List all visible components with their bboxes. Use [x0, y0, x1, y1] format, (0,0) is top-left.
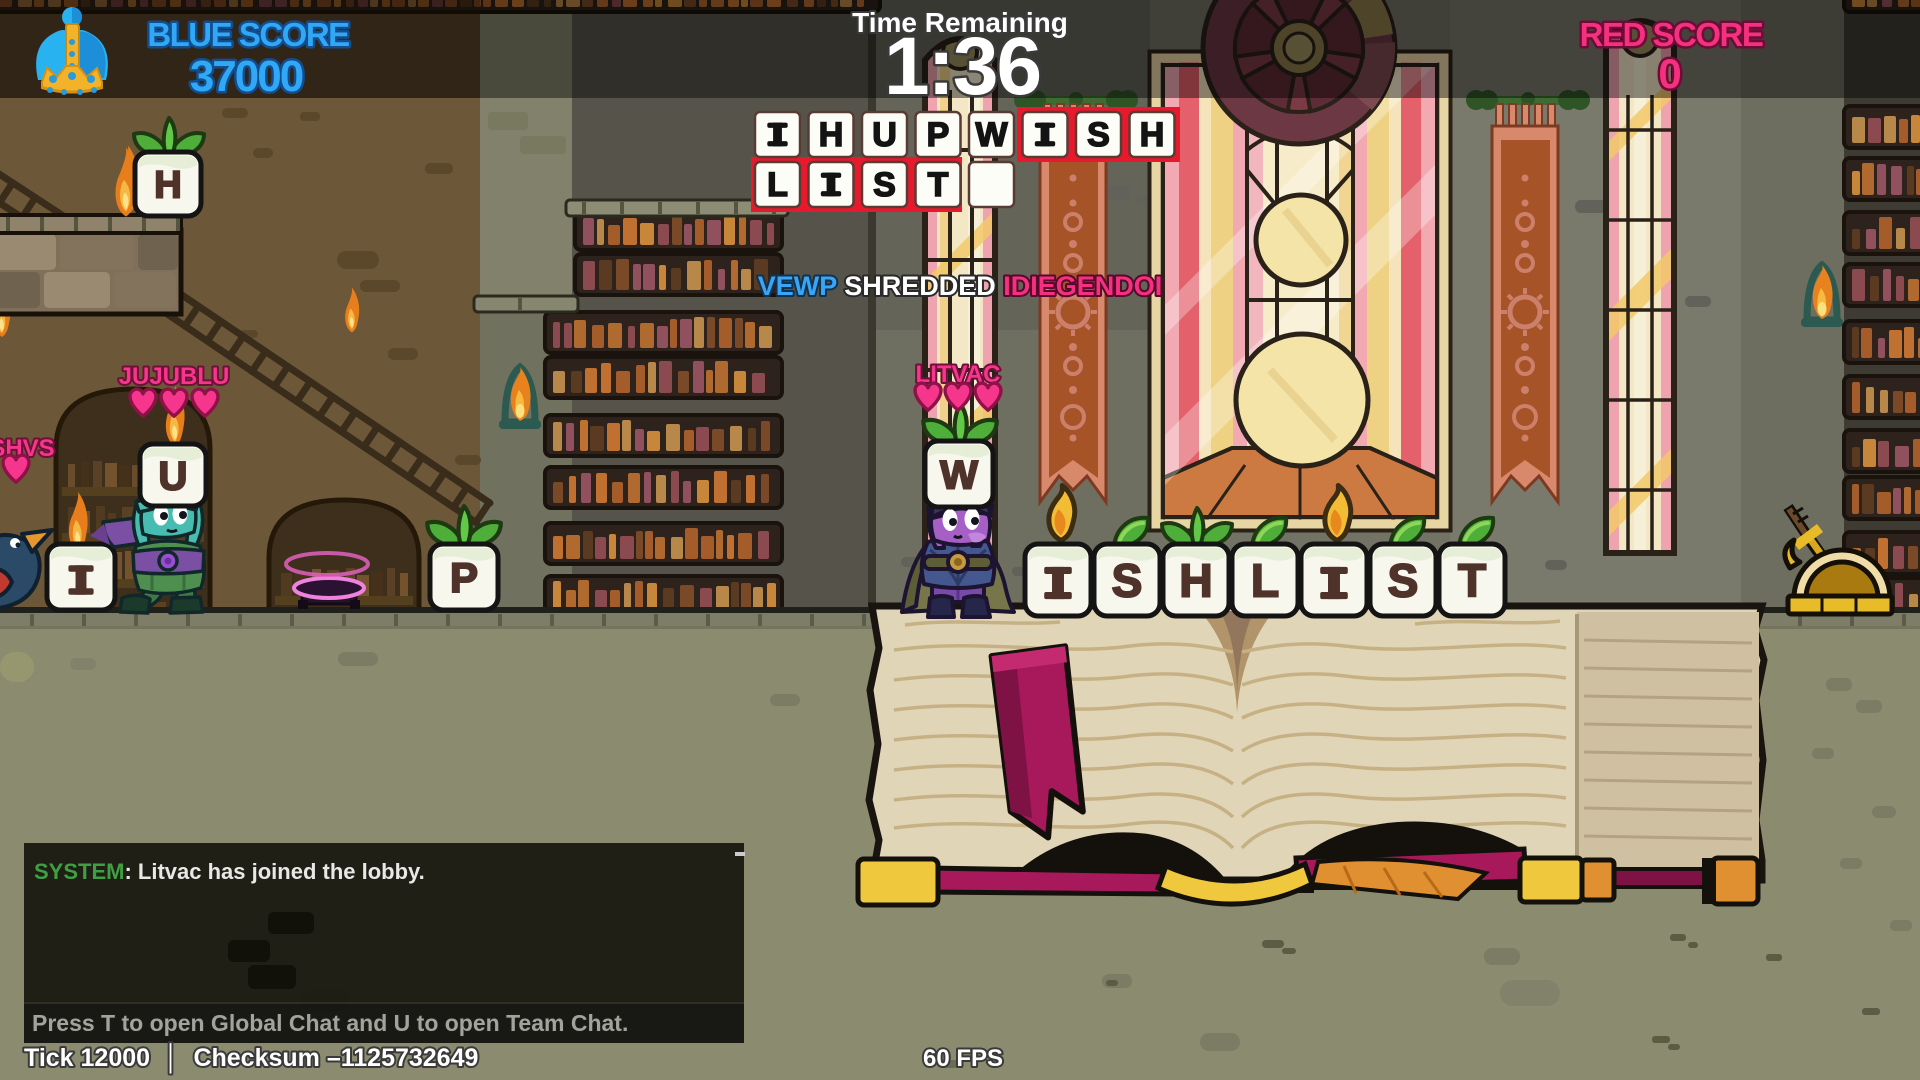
svg-text:W: W	[940, 453, 978, 497]
svg-text:U: U	[872, 116, 897, 154]
svg-text:SYSTEM: Litvac has joined the: SYSTEM: Litvac has joined the lobby.	[34, 859, 425, 884]
svg-text:H: H	[154, 165, 181, 207]
svg-text:T: T	[1458, 555, 1486, 607]
svg-text:L: L	[767, 166, 788, 204]
svg-text:60 FPS: 60 FPS	[923, 1045, 1003, 1072]
svg-text:1:36: 1:36	[884, 21, 1040, 112]
svg-text:BLUE SCORE: BLUE SCORE	[147, 16, 349, 53]
svg-text:0: 0	[1658, 50, 1681, 97]
svg-text:Tick 12000 │ Checksum –11257: Tick 12000 │ Checksum –1125732649	[24, 1043, 478, 1074]
svg-text:S: S	[1087, 116, 1110, 154]
svg-text:H: H	[819, 116, 844, 154]
svg-text:LITVAC: LITVAC	[916, 361, 1001, 388]
svg-text:P: P	[450, 554, 478, 601]
svg-text:P: P	[927, 116, 950, 154]
svg-text:S: S	[873, 166, 896, 204]
svg-text:U: U	[159, 454, 188, 498]
svg-text:S: S	[1112, 555, 1143, 607]
svg-text:37000: 37000	[190, 52, 303, 101]
svg-text:S: S	[1388, 555, 1419, 607]
svg-text:T: T	[928, 166, 949, 204]
svg-text:VEWP SHREDDED IDIEGENDOI: VEWP SHREDDED IDIEGENDOI	[758, 271, 1163, 301]
svg-text:H: H	[1179, 555, 1212, 607]
svg-text:Press T to open Global Chat an: Press T to open Global Chat and U to ope…	[32, 1010, 628, 1036]
svg-text:L: L	[1251, 555, 1279, 607]
svg-text:W: W	[975, 116, 1008, 154]
svg-text:RED SCORE: RED SCORE	[1580, 16, 1763, 53]
svg-text:H: H	[1140, 116, 1165, 154]
svg-text:JUJUBLU: JUJUBLU	[119, 363, 230, 390]
